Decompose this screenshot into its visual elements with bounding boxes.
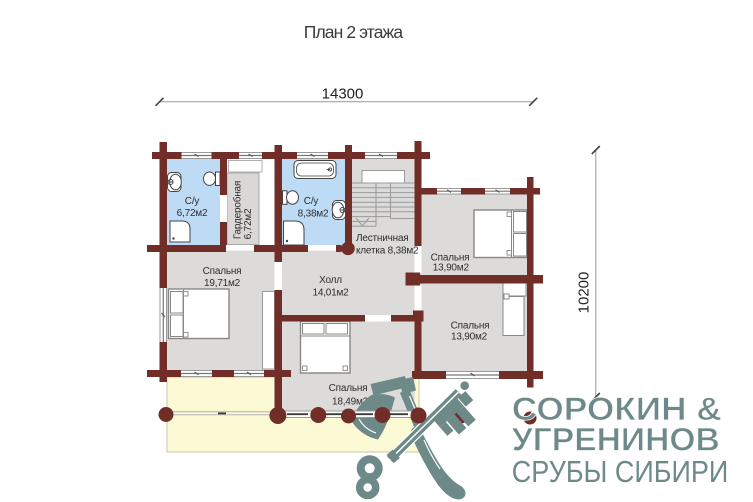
svg-text:6,72м2: 6,72м2: [177, 208, 208, 219]
svg-text:Спальня: Спальня: [329, 383, 368, 394]
svg-text:Холл: Холл: [319, 275, 342, 286]
svg-text:14300: 14300: [322, 86, 364, 103]
svg-text:СРУБЫ СИБИРИ: СРУБЫ СИБИРИ: [512, 454, 729, 489]
svg-text:14,01м2: 14,01м2: [312, 288, 349, 299]
svg-text:Гардеробная: Гардеробная: [232, 181, 244, 239]
svg-text:13,90м2: 13,90м2: [451, 332, 488, 343]
svg-text:Спальня: Спальня: [203, 266, 242, 277]
svg-text:10200: 10200: [576, 272, 593, 314]
svg-text:8,38м2: 8,38м2: [298, 209, 329, 220]
svg-text:С/у: С/у: [304, 196, 319, 207]
svg-text:6,72м2: 6,72м2: [243, 208, 254, 239]
svg-text:УГРЕНИНОВ: УГРЕНИНОВ: [512, 422, 720, 458]
svg-text:С/у: С/у: [185, 196, 200, 207]
svg-text:Спальня: Спальня: [451, 321, 490, 332]
svg-text:13,90м2: 13,90м2: [433, 263, 470, 274]
svg-text:План 2 этажа: План 2 этажа: [304, 22, 404, 42]
svg-text:клетка 8,38м2: клетка 8,38м2: [356, 246, 419, 257]
svg-text:Лестничная: Лестничная: [356, 233, 409, 244]
svg-text:19,71м2: 19,71м2: [204, 278, 241, 289]
